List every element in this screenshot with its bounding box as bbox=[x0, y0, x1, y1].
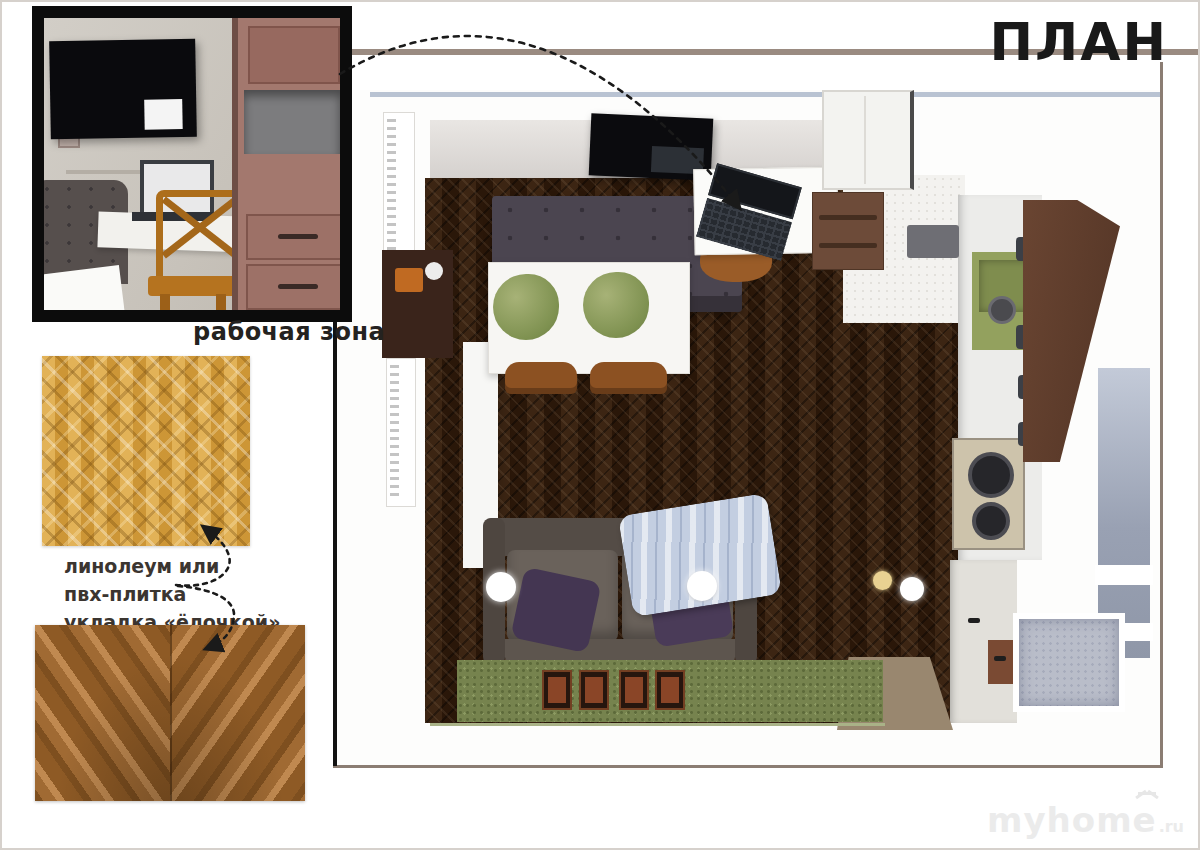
frame-art bbox=[661, 677, 679, 703]
rug-picture-frame bbox=[619, 670, 649, 710]
stove-burner bbox=[972, 502, 1010, 540]
small-appliance bbox=[907, 225, 959, 258]
photo-caption: рабочая зона bbox=[193, 318, 385, 346]
cabinet-handle bbox=[968, 618, 980, 623]
right-frame-line bbox=[1160, 62, 1163, 767]
window-band-top bbox=[370, 92, 1160, 97]
cabinet-drawer bbox=[246, 264, 342, 310]
ceiling-lamp bbox=[873, 571, 892, 590]
cabinet-niche bbox=[244, 90, 340, 154]
ceiling-lamp bbox=[687, 571, 717, 601]
flooring-sample-herringbone bbox=[42, 356, 250, 546]
frame-art bbox=[585, 677, 603, 703]
rug-picture-frame bbox=[542, 670, 572, 710]
globe-lamp bbox=[425, 262, 443, 280]
drawer-cabinet bbox=[812, 192, 884, 270]
bathroom-floor bbox=[1013, 613, 1125, 712]
wall-gap bbox=[1095, 565, 1153, 585]
cabinet-handle bbox=[994, 656, 1006, 661]
chair-leg bbox=[160, 294, 170, 310]
cabinet-door bbox=[988, 640, 1014, 684]
radiator-strip bbox=[390, 365, 399, 500]
flooring-sample-chevron bbox=[35, 625, 305, 801]
flooring-note: линолеум или пвх-плитка укладка «ёлочкой… bbox=[64, 552, 280, 636]
table-corner bbox=[36, 265, 125, 321]
chair-leg bbox=[216, 294, 226, 310]
left-window-radiator bbox=[386, 358, 416, 507]
tall-cabinet bbox=[232, 18, 346, 310]
frame-art bbox=[625, 677, 643, 703]
bottom-frame-line bbox=[333, 765, 1163, 768]
note-line-1: линолеум или bbox=[64, 552, 280, 580]
drawer-handle bbox=[819, 215, 877, 220]
lower-kitchen-cabinet bbox=[950, 560, 1017, 723]
drawer-handle bbox=[819, 243, 877, 248]
stove-burner bbox=[968, 452, 1014, 498]
page-title: ПЛАН bbox=[990, 12, 1168, 72]
moodboard-page: ПЛАН рабочая зона линолеум или пвх-плитк… bbox=[0, 0, 1200, 850]
wooden-chair bbox=[505, 362, 577, 394]
note-line-2: пвх-плитка bbox=[64, 580, 280, 608]
rug-picture-frame bbox=[655, 670, 685, 710]
tv-screen bbox=[49, 39, 197, 140]
house-icon bbox=[1138, 792, 1156, 807]
workspace-photo bbox=[32, 6, 352, 322]
cabinet-drawer bbox=[246, 214, 342, 260]
watermark: myhome .ru bbox=[987, 800, 1184, 840]
stove bbox=[952, 438, 1025, 550]
watermark-tld: .ru bbox=[1159, 817, 1184, 836]
chevron-shading bbox=[35, 625, 305, 801]
side-desk-unit bbox=[382, 250, 453, 358]
rug-picture-frame bbox=[579, 670, 609, 710]
ceiling-lamp bbox=[486, 572, 516, 602]
frame-art bbox=[548, 677, 566, 703]
sink-faucet bbox=[988, 296, 1016, 324]
ceiling-lamp bbox=[900, 577, 924, 601]
table-plant bbox=[583, 272, 649, 338]
wooden-chair-seat bbox=[148, 276, 240, 296]
drawer-handle bbox=[278, 234, 318, 239]
wooden-chair bbox=[590, 362, 667, 394]
cabinet-upper-door bbox=[248, 26, 340, 84]
watermark-brand: myhome bbox=[987, 800, 1157, 840]
desk-accessory bbox=[395, 268, 423, 292]
floor-plan-render bbox=[337, 90, 1160, 765]
tv-reflection bbox=[144, 99, 183, 130]
wardrobe-door-split bbox=[864, 96, 866, 184]
drawer-handle bbox=[278, 284, 318, 289]
table-plant bbox=[493, 274, 559, 340]
wardrobe bbox=[822, 90, 914, 190]
bottom-wall-edge bbox=[430, 723, 885, 726]
